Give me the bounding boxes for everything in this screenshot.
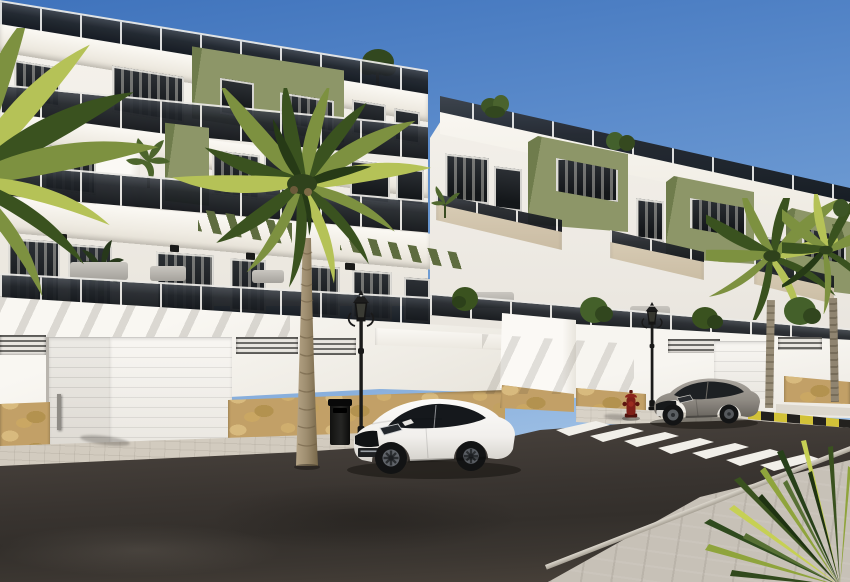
terrace-shrub-2 (578, 294, 614, 328)
balcony-plant-small (430, 184, 460, 220)
grey-coupe-car (644, 368, 764, 432)
vent-grille-4 (668, 339, 720, 353)
foreground-palm-fronds (688, 438, 850, 582)
white-coupe-car (338, 386, 530, 484)
right-upper-window-2 (494, 166, 522, 211)
garage-door-handle (57, 394, 61, 430)
terrace-shrub-3 (690, 304, 724, 334)
garage-door-left-2 (110, 337, 232, 455)
vent-grille-1 (0, 335, 46, 355)
right-cube1-window (556, 158, 618, 202)
scene-render (0, 0, 850, 582)
rooftop-shrub-1 (480, 92, 510, 120)
fire-hydrant (620, 389, 642, 421)
vent-grille-2 (236, 337, 298, 354)
rooftop-shrub-2 (604, 128, 636, 156)
terrace-shrub-1 (450, 284, 480, 314)
right-mid-window-1 (636, 198, 664, 241)
palm-fronds-left-edge (0, 28, 194, 338)
vent-grille-5 (778, 337, 822, 350)
rooftop-shrub-3 (832, 198, 850, 218)
road-worn-patch (0, 515, 330, 582)
terrace-shrub-4 (782, 294, 822, 330)
palm-canopy-large (168, 88, 448, 304)
